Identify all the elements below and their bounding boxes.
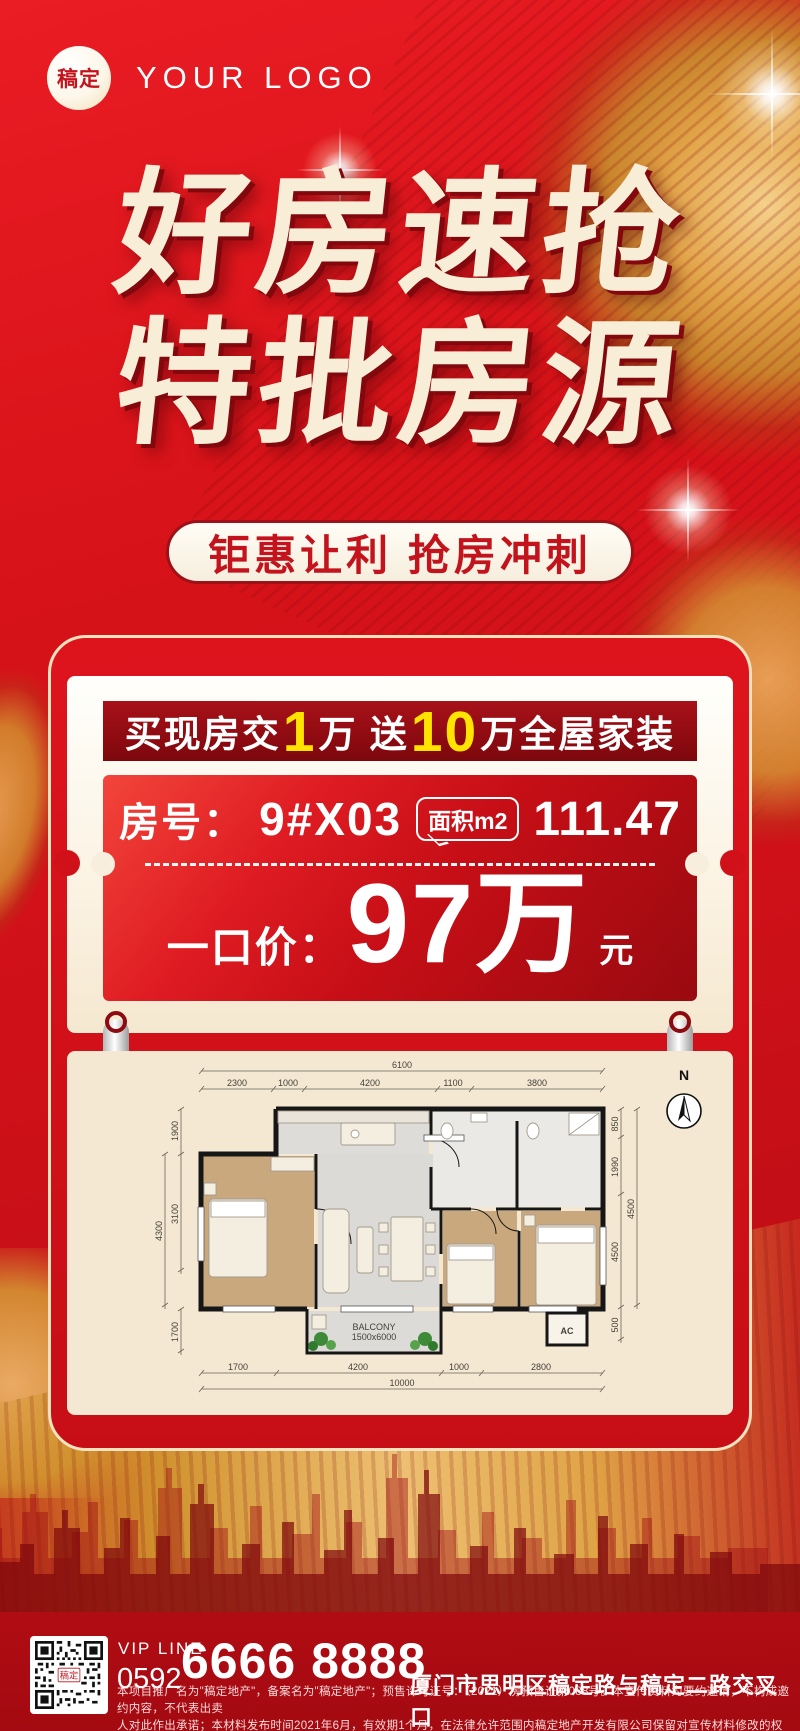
headline-line1: 好房速抢 <box>0 166 800 302</box>
svg-text:1000: 1000 <box>278 1078 298 1088</box>
price-row: 一口价： 97万 元 <box>103 871 697 993</box>
promo-poster: 稿定 YOUR LOGO 好房速抢 特批房源 钜惠让利 抢房冲刺 买现房交1万 … <box>0 0 800 1731</box>
offer-card: 买现房交1万 送10万全屋家装 房号： 9#X03 面积m2 111.47 一口… <box>48 635 752 1451</box>
logo-badge-text: 稿定 <box>57 63 101 93</box>
room-info-row: 房号： 9#X03 面积m2 111.47 <box>103 791 697 847</box>
svg-text:1700: 1700 <box>170 1322 180 1342</box>
price-ticket: 房号： 9#X03 面积m2 111.47 一口价： 97万 元 <box>103 775 697 1001</box>
compass-icon: N <box>661 1065 707 1141</box>
svg-text:稿定: 稿定 <box>60 1670 78 1681</box>
price-unit: 元 <box>599 923 633 972</box>
svg-text:500: 500 <box>610 1317 620 1332</box>
logo: 稿定 YOUR LOGO <box>47 46 378 110</box>
room-number-value: 9#X03 <box>259 792 402 846</box>
logo-text: YOUR LOGO <box>136 60 378 96</box>
svg-text:1700: 1700 <box>228 1362 248 1372</box>
svg-text:3800: 3800 <box>527 1078 547 1088</box>
floorplan-panel: 6100 2300 1000 4200 1100 3800 1900 4300 … <box>67 1051 733 1415</box>
phone-number: 6666 8888 <box>181 1632 426 1690</box>
svg-text:AC: AC <box>561 1326 574 1336</box>
ticket-notch <box>54 850 80 876</box>
disclaimer: 本项目推广名为"稿定地产"，备案名为"稿定地产"；预售许可证号：（2021）房预… <box>117 1684 795 1731</box>
disclaimer-line1: 本项目推广名为"稿定地产"，备案名为"稿定地产"；预售许可证号：（2021）房预… <box>117 1686 789 1715</box>
balcony-size-label: 1500x6000 <box>352 1332 397 1342</box>
price-value: 97万 <box>347 871 590 977</box>
banner-number-10: 10 <box>411 704 478 761</box>
qr-code: 稿定 <box>30 1636 108 1714</box>
promo-banner: 买现房交1万 送10万全屋家装 <box>103 701 697 761</box>
ticket-panel: 买现房交1万 送10万全屋家装 房号： 9#X03 面积m2 111.47 一口… <box>67 676 733 1033</box>
balcony-label: BALCONY <box>352 1322 395 1332</box>
svg-text:1990: 1990 <box>610 1157 620 1177</box>
banner-number-1: 1 <box>283 704 317 761</box>
banner-text: 万全屋家装 <box>480 704 675 758</box>
banner-text: 万 送 <box>319 704 409 758</box>
svg-text:4300: 4300 <box>154 1221 164 1241</box>
svg-text:6100: 6100 <box>392 1060 412 1070</box>
logo-badge-icon: 稿定 <box>47 46 111 110</box>
svg-text:N: N <box>679 1067 689 1083</box>
sparkle-icon <box>636 458 740 562</box>
svg-text:4500: 4500 <box>610 1242 620 1262</box>
svg-text:10000: 10000 <box>389 1378 414 1388</box>
sparkle-icon <box>706 28 800 160</box>
disclaimer-line2: 人对此作出承诺；本材料发布时间2021年6月，有效期1个月，在法律允许范围内稿定… <box>117 1720 783 1731</box>
floor-plan: 6100 2300 1000 4200 1100 3800 1900 4300 … <box>141 1059 661 1407</box>
ac-unit: AC <box>547 1313 587 1345</box>
svg-text:4200: 4200 <box>360 1078 380 1088</box>
svg-text:1900: 1900 <box>170 1121 180 1141</box>
banner-text: 买现房交 <box>125 704 281 758</box>
area-badge: 面积m2 <box>416 797 519 841</box>
svg-text:2800: 2800 <box>531 1362 551 1372</box>
svg-text:1000: 1000 <box>449 1362 469 1372</box>
subtitle-pill: 钜惠让利 抢房冲刺 <box>166 520 634 584</box>
svg-text:1100: 1100 <box>443 1078 462 1088</box>
svg-text:4500: 4500 <box>626 1199 636 1219</box>
area-value: 111.47 <box>533 792 681 847</box>
svg-text:4200: 4200 <box>348 1362 368 1372</box>
svg-text:2300: 2300 <box>227 1078 247 1088</box>
ticket-notch <box>720 850 746 876</box>
price-label: 一口价： <box>167 914 343 975</box>
subtitle-text: 钜惠让利 抢房冲刺 <box>208 522 592 583</box>
svg-text:850: 850 <box>610 1116 620 1131</box>
room-number-label: 房号： <box>119 790 245 848</box>
city-skyline <box>0 1440 800 1628</box>
svg-text:3100: 3100 <box>170 1204 180 1224</box>
headline-line2: 特批房源 <box>0 316 800 452</box>
